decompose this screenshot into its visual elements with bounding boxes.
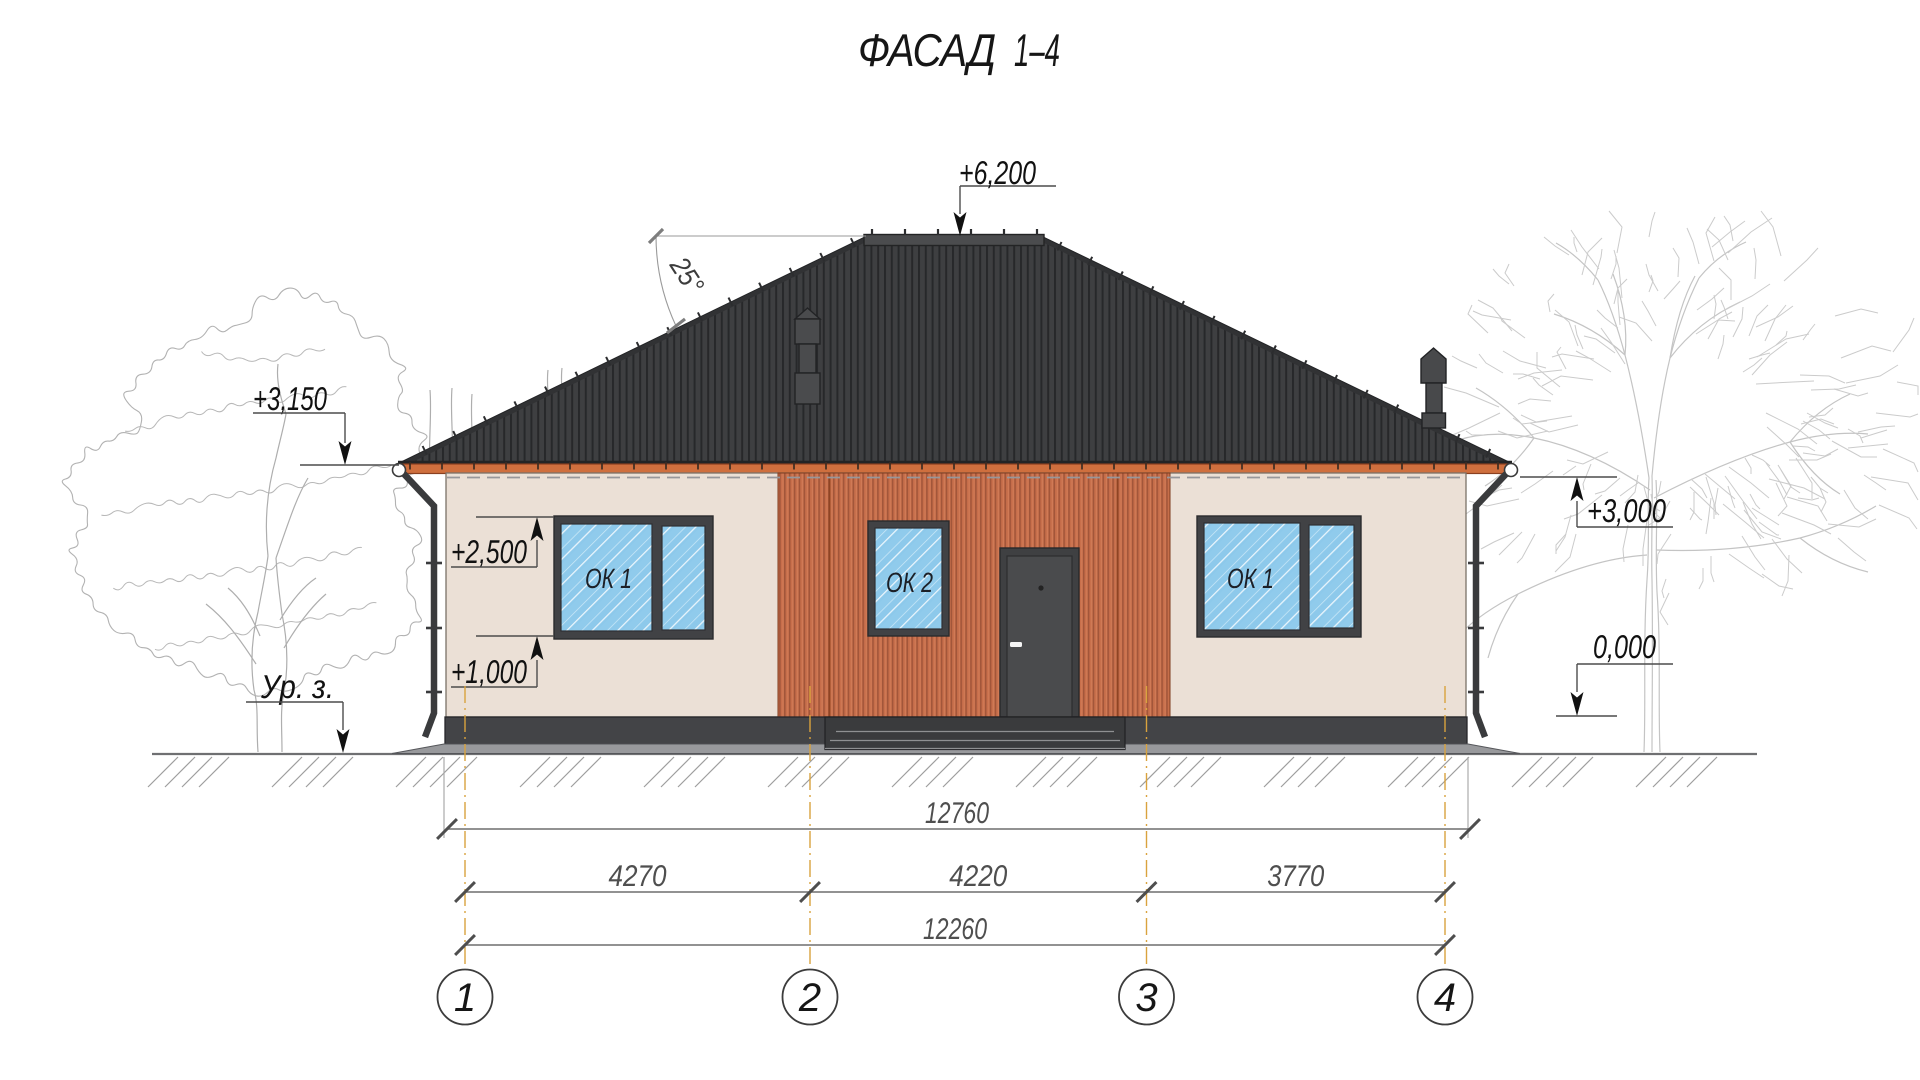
svg-text:4270: 4270 — [609, 860, 667, 893]
svg-text:2: 2 — [798, 976, 821, 1020]
svg-text:4220: 4220 — [949, 860, 1007, 893]
svg-text:+6,200: +6,200 — [959, 154, 1036, 191]
svg-text:+3,000: +3,000 — [1587, 492, 1666, 529]
svg-text:+3,150: +3,150 — [253, 380, 327, 417]
svg-text:ОК 2: ОК 2 — [886, 567, 933, 598]
svg-text:ФАСАД: ФАСАД — [858, 24, 996, 76]
svg-text:+1,000: +1,000 — [451, 653, 527, 690]
svg-text:12260: 12260 — [923, 913, 987, 946]
svg-text:4: 4 — [1434, 976, 1456, 1020]
svg-text:1–4: 1–4 — [1014, 24, 1060, 76]
svg-text:0,000: 0,000 — [1593, 628, 1656, 665]
svg-text:ОК 1: ОК 1 — [1227, 563, 1274, 594]
svg-text:1: 1 — [454, 976, 476, 1020]
svg-text:ОК 1: ОК 1 — [585, 563, 632, 594]
svg-text:+2,500: +2,500 — [451, 533, 527, 570]
svg-text:3: 3 — [1135, 976, 1157, 1020]
svg-text:Ур. з.: Ур. з. — [260, 668, 334, 705]
svg-text:12760: 12760 — [925, 797, 989, 830]
svg-text:3770: 3770 — [1267, 860, 1324, 893]
